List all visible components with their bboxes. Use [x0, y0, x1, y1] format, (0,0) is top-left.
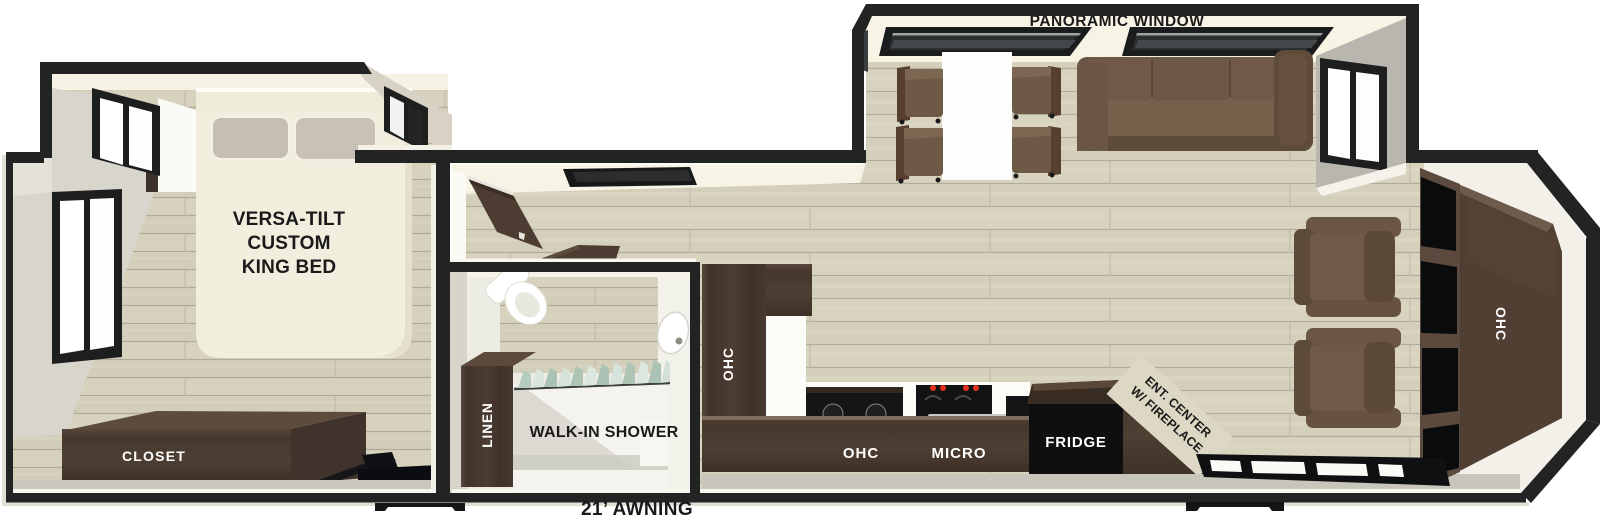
svg-text:FRIDGE: FRIDGE: [1045, 434, 1106, 451]
svg-text:CLOSET: CLOSET: [122, 448, 186, 464]
svg-text:LINEN: LINEN: [480, 402, 495, 448]
svg-text:CUSTOM: CUSTOM: [247, 233, 330, 254]
svg-text:KING BED: KING BED: [242, 257, 337, 278]
svg-text:OHC: OHC: [720, 347, 736, 381]
svg-text:VERSA-TILT: VERSA-TILT: [233, 209, 346, 230]
svg-text:OHC: OHC: [843, 445, 879, 462]
svg-text:21’ AWNING: 21’ AWNING: [581, 499, 693, 517]
svg-text:MICRO: MICRO: [932, 445, 987, 462]
svg-text:WALK-IN SHOWER: WALK-IN SHOWER: [529, 424, 678, 441]
svg-text:OHC: OHC: [1493, 307, 1509, 341]
